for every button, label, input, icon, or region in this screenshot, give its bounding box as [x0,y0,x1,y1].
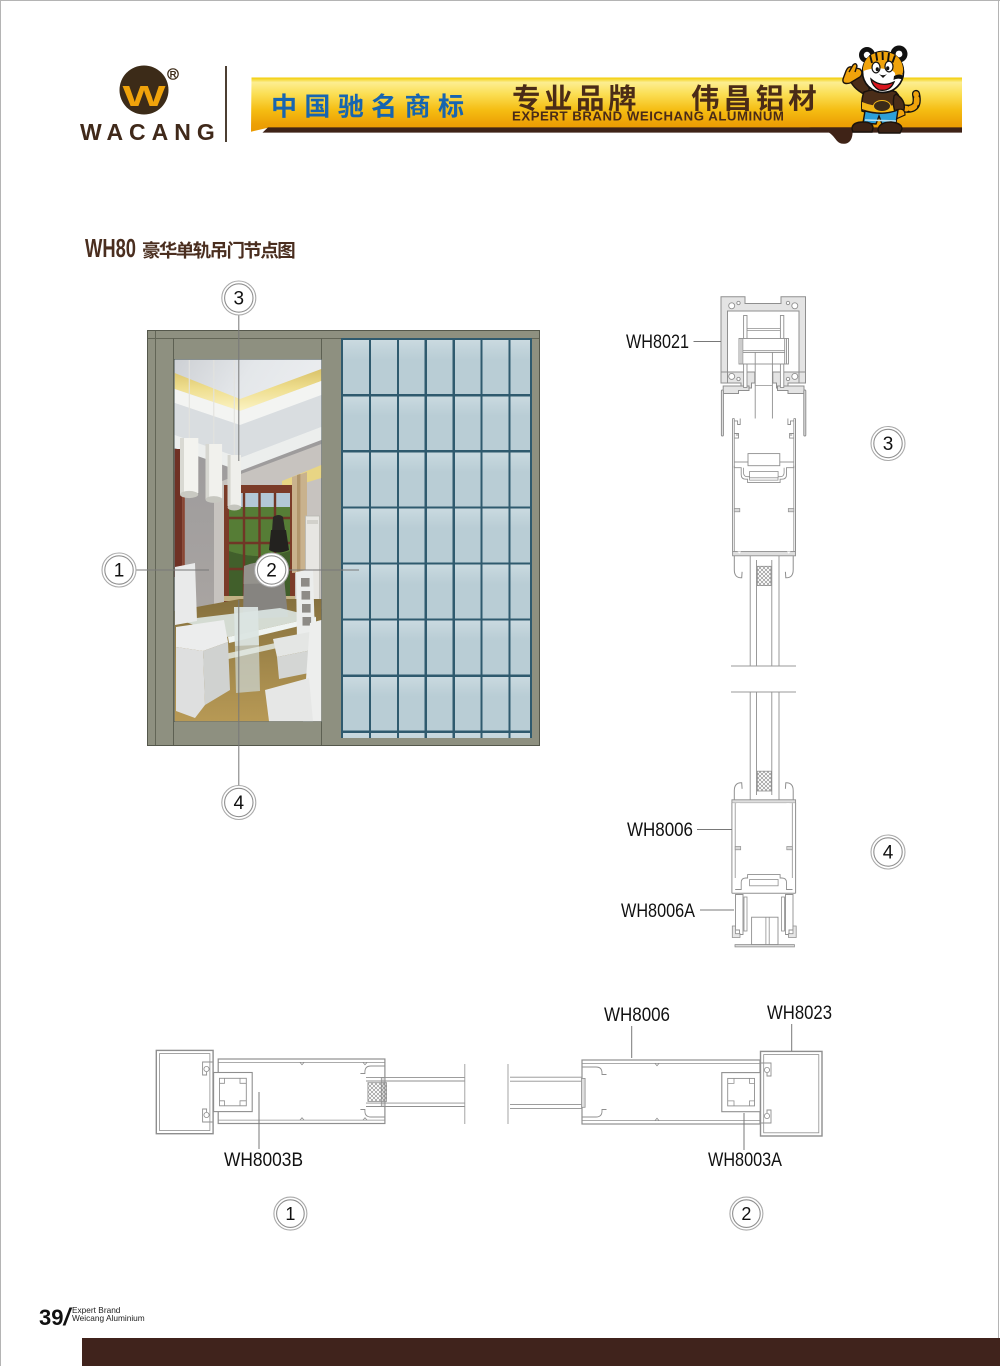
svg-text:WH8021: WH8021 [626,331,689,353]
svg-text:4: 4 [234,793,245,814]
svg-text:3: 3 [234,289,245,310]
svg-text:WH8003B: WH8003B [224,1149,303,1171]
svg-text:4: 4 [883,843,894,864]
svg-text:WH8006: WH8006 [627,819,693,841]
svg-text:3: 3 [883,434,894,455]
svg-text:2: 2 [266,561,277,582]
svg-text:WH8006: WH8006 [604,1004,670,1026]
svg-text:WH8023: WH8023 [767,1002,832,1024]
svg-text:1: 1 [114,561,125,582]
svg-text:2: 2 [741,1204,751,1224]
svg-text:WH8003A: WH8003A [708,1149,782,1171]
svg-text:1: 1 [285,1204,295,1224]
svg-text:WH8006A: WH8006A [621,900,695,922]
